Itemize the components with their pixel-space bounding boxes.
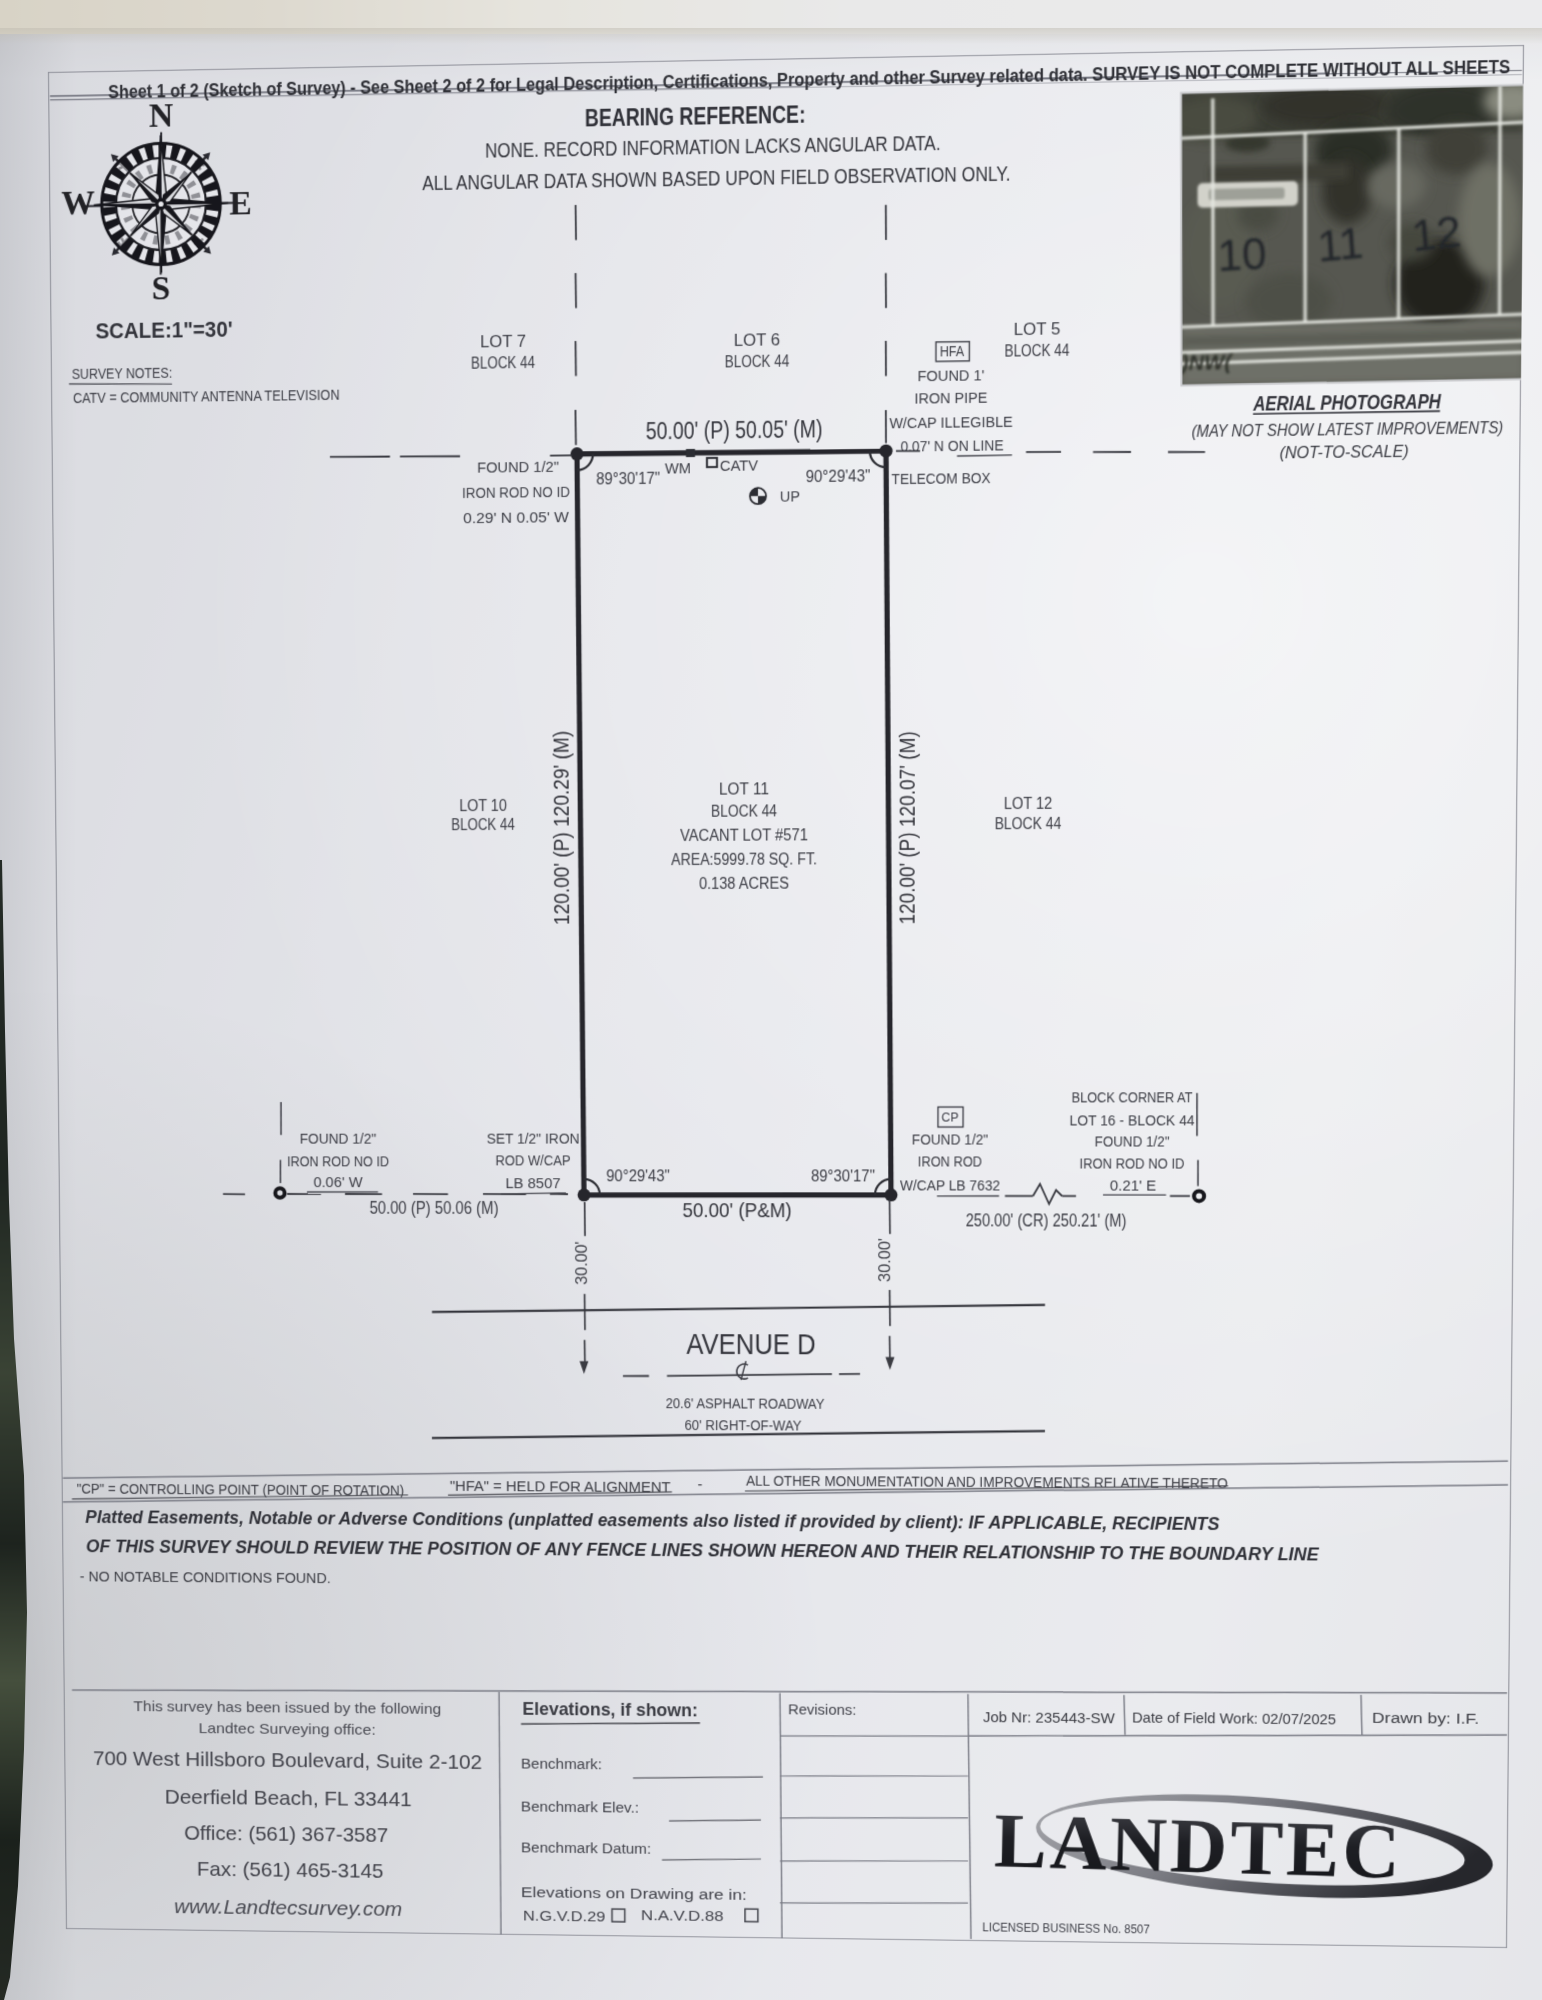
- svg-text:E: E: [229, 185, 252, 223]
- svg-text:89°30'17": 89°30'17": [596, 470, 660, 489]
- svg-text:CP: CP: [941, 1110, 958, 1125]
- svg-text:LOT 5: LOT 5: [1014, 321, 1061, 339]
- svg-text:BLOCK 44: BLOCK 44: [725, 353, 790, 371]
- svg-text:OF THIS SURVEY SHOULD REVIEW T: OF THIS SURVEY SHOULD REVIEW THE POSITIO…: [86, 1537, 1320, 1566]
- svg-text:LOT 12: LOT 12: [1004, 795, 1053, 812]
- svg-text:LOT 6: LOT 6: [734, 332, 780, 350]
- svg-text:N.G.V.D.29: N.G.V.D.29: [523, 1908, 605, 1926]
- svg-text:Drawn by: I.F.: Drawn by: I.F.: [1372, 1710, 1479, 1728]
- svg-text:BLOCK 44: BLOCK 44: [451, 817, 515, 834]
- svg-text:Elevations on Drawing are in:: Elevations on Drawing are in:: [521, 1885, 747, 1904]
- svg-text:ROD W/CAP: ROD W/CAP: [495, 1153, 570, 1170]
- svg-text:0.138 ACRES: 0.138 ACRES: [699, 875, 789, 893]
- svg-text:Benchmark Elev.:: Benchmark Elev.:: [521, 1799, 639, 1817]
- svg-text:AREA:5999.78 SQ. FT.: AREA:5999.78 SQ. FT.: [671, 851, 817, 870]
- svg-text:BLOCK 44: BLOCK 44: [711, 803, 777, 821]
- svg-text:BLOCK CORNER AT: BLOCK CORNER AT: [1071, 1089, 1193, 1106]
- svg-text:IRON PIPE: IRON PIPE: [915, 390, 988, 408]
- svg-text:90°29'43": 90°29'43": [606, 1167, 670, 1185]
- svg-text:HFA: HFA: [940, 343, 965, 360]
- svg-text:50.00' (P&M): 50.00' (P&M): [682, 1199, 791, 1222]
- svg-text:Job Nr: 235443-SW: Job Nr: 235443-SW: [983, 1710, 1116, 1728]
- svg-text:LICENSED BUSINESS No. 8507: LICENSED BUSINESS No. 8507: [982, 1920, 1149, 1937]
- svg-text:IRON ROD NO ID: IRON ROD NO ID: [287, 1154, 389, 1171]
- svg-text:BEARING REFERENCE:: BEARING REFERENCE:: [585, 101, 806, 131]
- svg-text:)NW(: )NW(: [1179, 351, 1233, 376]
- svg-text:FOUND 1': FOUND 1': [918, 367, 985, 385]
- svg-text:0.07' N ON LINE: 0.07' N ON LINE: [900, 437, 1003, 456]
- svg-text:SURVEY NOTES:: SURVEY NOTES:: [72, 365, 173, 382]
- svg-text:11: 11: [1316, 219, 1365, 272]
- svg-text:FOUND 1/2": FOUND 1/2": [300, 1131, 377, 1148]
- svg-text:IRON ROD NO ID: IRON ROD NO ID: [1080, 1156, 1185, 1173]
- svg-text:120.00' (P) 120.29' (M): 120.00' (P) 120.29' (M): [548, 731, 573, 925]
- svg-text:Revisions:: Revisions:: [788, 1702, 857, 1719]
- svg-text:SCALE:1"=30': SCALE:1"=30': [95, 316, 232, 343]
- svg-text:BLOCK 44: BLOCK 44: [471, 355, 535, 373]
- svg-text:20.6' ASPHALT ROADWAY: 20.6' ASPHALT ROADWAY: [666, 1395, 825, 1413]
- svg-text:Fax: (561) 465-3145: Fax: (561) 465-3145: [197, 1858, 384, 1883]
- svg-text:W/CAP LB 7632: W/CAP LB 7632: [900, 1177, 1000, 1194]
- svg-text:50.00 (P) 50.06 (M): 50.00 (P) 50.06 (M): [369, 1198, 498, 1218]
- svg-text:120.00' (P) 120.07' (M): 120.00' (P) 120.07' (M): [894, 731, 919, 924]
- svg-text:N.A.V.D.88: N.A.V.D.88: [641, 1908, 724, 1926]
- svg-text:30.00': 30.00': [877, 1238, 894, 1282]
- svg-text:AVENUE D: AVENUE D: [686, 1329, 815, 1361]
- svg-text:250.00' (CR) 250.21' (M): 250.00' (CR) 250.21' (M): [966, 1210, 1127, 1230]
- svg-text:(NOT-TO-SCALE): (NOT-TO-SCALE): [1279, 442, 1408, 463]
- svg-text:NONE. RECORD INFORMATION LACKS: NONE. RECORD INFORMATION LACKS ANGULAR D…: [485, 131, 940, 162]
- svg-text:0.21' E: 0.21' E: [1110, 1177, 1156, 1194]
- svg-text:- NO NOTABLE CONDITIONS FOUND.: - NO NOTABLE CONDITIONS FOUND.: [80, 1569, 331, 1587]
- svg-text:UP: UP: [780, 488, 800, 505]
- svg-text:Elevations, if shown:: Elevations, if shown:: [523, 1699, 698, 1720]
- svg-text:700 West Hillsboro Boulevard,: 700 West Hillsboro Boulevard, Suite 2-10…: [93, 1748, 482, 1774]
- svg-text:W: W: [61, 184, 95, 222]
- svg-text:BLOCK 44: BLOCK 44: [995, 816, 1062, 834]
- svg-text:www.Landtecsurvey.com: www.Landtecsurvey.com: [174, 1895, 402, 1920]
- svg-text:N: N: [149, 97, 174, 135]
- svg-text:IRON ROD NO ID: IRON ROD NO ID: [462, 484, 570, 502]
- svg-text:Date of Field Work: 02/07/2025: Date of Field Work: 02/07/2025: [1132, 1710, 1336, 1729]
- svg-text:BLOCK 44: BLOCK 44: [1004, 343, 1069, 361]
- svg-text:Office: (561) 367-3587: Office: (561) 367-3587: [184, 1823, 388, 1848]
- svg-text:LOT 7: LOT 7: [480, 334, 526, 352]
- svg-text:IRON ROD: IRON ROD: [918, 1153, 982, 1170]
- svg-text:WM: WM: [665, 460, 691, 478]
- svg-text:Deerfield Beach, FL 33441: Deerfield Beach, FL 33441: [165, 1786, 412, 1811]
- svg-text:-: -: [697, 1477, 702, 1494]
- svg-text:Landtec Surveying office:: Landtec Surveying office:: [199, 1720, 376, 1737]
- svg-text:10: 10: [1217, 229, 1268, 281]
- svg-text:VACANT LOT #571: VACANT LOT #571: [680, 827, 808, 846]
- svg-text:LANDTEC: LANDTEC: [993, 1798, 1404, 1896]
- svg-text:90°29'43": 90°29'43": [806, 467, 871, 486]
- svg-text:Benchmark Datum:: Benchmark Datum:: [521, 1840, 651, 1858]
- svg-text:S: S: [151, 270, 170, 308]
- svg-text:89°30'17": 89°30'17": [811, 1167, 875, 1185]
- svg-text:LOT 16 - BLOCK 44: LOT 16 - BLOCK 44: [1069, 1112, 1195, 1129]
- svg-text:0.06' W: 0.06' W: [313, 1175, 363, 1192]
- svg-text:FOUND 1/2": FOUND 1/2": [912, 1132, 988, 1149]
- svg-text:30.00': 30.00': [575, 1241, 592, 1285]
- svg-text:60' RIGHT-OF-WAY: 60' RIGHT-OF-WAY: [685, 1417, 802, 1434]
- svg-text:TELECOM BOX: TELECOM BOX: [892, 470, 991, 488]
- svg-text:50.00' (P) 50.05' (M): 50.00' (P) 50.05' (M): [646, 416, 823, 445]
- svg-text:FOUND 1/2": FOUND 1/2": [477, 459, 559, 477]
- svg-text:CATV = COMMUNITY ANTENNA TELEV: CATV = COMMUNITY ANTENNA TELEVISION: [73, 387, 340, 407]
- svg-text:SET 1/2" IRON: SET 1/2" IRON: [487, 1131, 580, 1148]
- svg-text:LOT 11: LOT 11: [719, 781, 769, 799]
- svg-text:12: 12: [1410, 207, 1463, 262]
- svg-text:LB 8507: LB 8507: [505, 1176, 560, 1193]
- svg-text:0.29' N 0.05' W: 0.29' N 0.05' W: [463, 509, 569, 527]
- svg-text:W/CAP ILLEGIBLE: W/CAP ILLEGIBLE: [889, 414, 1012, 433]
- svg-text:Platted Easements, Notable or: Platted Easements, Notable or Adverse Co…: [85, 1507, 1220, 1535]
- svg-text:Benchmark:: Benchmark:: [521, 1756, 602, 1773]
- svg-text:LOT 10: LOT 10: [459, 798, 507, 815]
- svg-text:CATV: CATV: [720, 457, 758, 475]
- svg-text:FOUND 1/2": FOUND 1/2": [1095, 1133, 1170, 1150]
- svg-text:(MAY NOT SHOW LATEST IMPROVEME: (MAY NOT SHOW LATEST IMPROVEMENTS): [1192, 418, 1504, 441]
- svg-text:This survey has been issued by: This survey has been issued by the follo…: [134, 1699, 442, 1717]
- svg-text:ALL ANGULAR DATA SHOWN BASED U: ALL ANGULAR DATA SHOWN BASED UPON FIELD …: [422, 162, 1010, 195]
